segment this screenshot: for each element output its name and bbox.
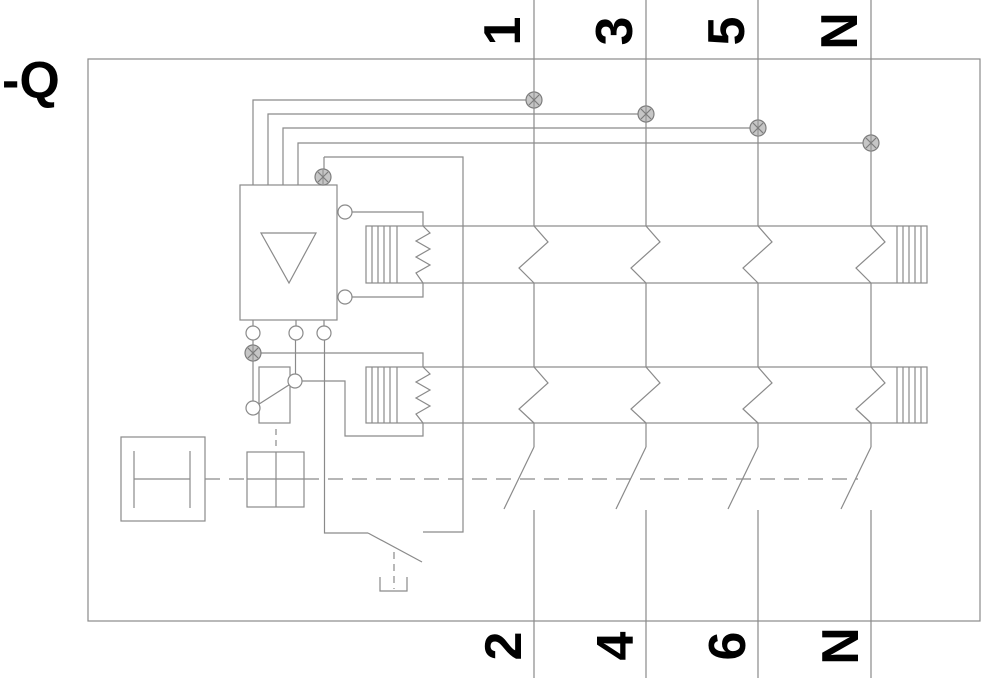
pole-contact-blade xyxy=(504,447,534,509)
trip-relay-triangle-icon xyxy=(261,233,316,283)
test-switch-blade xyxy=(368,533,422,562)
pole-bottom-label-4: 4 xyxy=(587,631,645,660)
terminal-circle xyxy=(338,290,352,304)
pole-winding-lower xyxy=(519,367,548,423)
pole-N-N xyxy=(298,0,885,678)
pole-conductors-layer xyxy=(245,0,885,678)
terminal-circle xyxy=(289,326,303,340)
pole-contact-blade xyxy=(841,447,871,509)
terminal-circle xyxy=(288,374,302,388)
pole-contact-blade xyxy=(616,447,646,509)
clamp-terminal-icon xyxy=(863,135,879,151)
pole-top-label-1: 1 xyxy=(474,17,532,46)
trip-relay-box xyxy=(240,185,337,320)
clamp-terminal-icon xyxy=(315,169,331,185)
pole-bottom-label-2: 2 xyxy=(475,632,533,661)
schematic-canvas: -Q xyxy=(0,0,985,678)
secondary-winding-lower-zigzag xyxy=(416,367,430,423)
terminal-circle xyxy=(246,401,260,415)
test-circuit xyxy=(324,157,463,591)
pole-top-label-3: 3 xyxy=(586,17,644,46)
release-actuator-line xyxy=(256,383,292,406)
secondary-winding-upper-zigzag xyxy=(416,226,430,283)
pole-winding-upper xyxy=(631,226,660,283)
clamp-terminal-icon xyxy=(750,120,766,136)
pole-winding-lower xyxy=(743,367,772,423)
pole-bottom-label-6: 6 xyxy=(699,632,757,661)
pole-bottom-label-N: N xyxy=(812,627,870,665)
release-box xyxy=(256,367,292,423)
clamp-terminal-icon xyxy=(638,106,654,122)
rcd-circuit-diagram: -Q xyxy=(0,0,985,678)
device-reference-label: -Q xyxy=(2,52,60,110)
pole-top-label-5: 5 xyxy=(698,17,756,46)
pole-winding-upper xyxy=(743,226,772,283)
secondary-winding-upper xyxy=(352,212,430,297)
pole-winding-lower xyxy=(856,367,885,423)
pole-winding-upper xyxy=(856,226,885,283)
pole-top-label-N: N xyxy=(811,12,869,50)
terminal-circle xyxy=(338,205,352,219)
manual-drive-box xyxy=(121,437,205,521)
pole-winding-lower xyxy=(631,367,660,423)
clamp-terminal-icon xyxy=(245,345,261,361)
clamp-terminal-icon xyxy=(526,92,542,108)
terminal-circle xyxy=(246,326,260,340)
pole-contact-blade xyxy=(728,447,758,509)
latch-mechanism-box xyxy=(247,452,304,507)
tap-wire xyxy=(298,143,871,185)
terminal-circle xyxy=(317,326,331,340)
pole-winding-upper xyxy=(519,226,548,283)
